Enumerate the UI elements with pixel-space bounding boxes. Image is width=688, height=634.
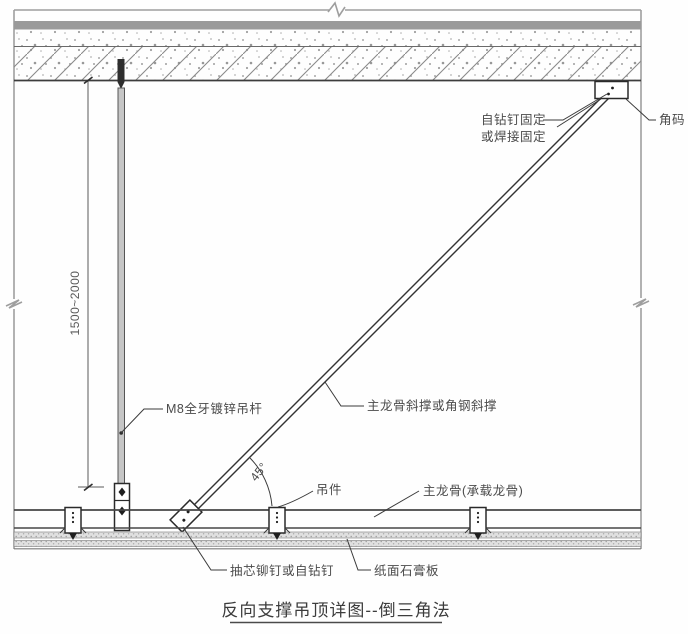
ceiling-detail-drawing: 1500~2000 45° xyxy=(0,0,688,634)
break-mark-icon xyxy=(6,300,22,308)
drawing-frame xyxy=(6,3,649,549)
label-fixing-line1: 自钻钉固定 xyxy=(481,112,546,127)
dimension-label: 1500~2000 xyxy=(68,271,82,336)
expansion-anchor xyxy=(118,59,125,82)
label-gypsum-board: 纸面石膏板 xyxy=(374,563,439,578)
main-runner xyxy=(14,510,641,528)
label-hanger-rod: M8全牙镀锌吊杆 xyxy=(166,401,262,416)
rod-hanger-connector xyxy=(115,484,130,531)
slab-screed-layer xyxy=(14,30,641,47)
dimension-hanger-height: 1500~2000 xyxy=(68,77,104,491)
label-diagonal-brace: 主龙骨斜撑或角钢斜撑 xyxy=(367,398,497,413)
angle-annotation: 45° xyxy=(247,458,272,506)
label-corner-bracket: 角码 xyxy=(659,113,685,127)
label-main-runner: 主龙骨(承载龙骨) xyxy=(423,484,523,498)
slab-topping-band xyxy=(14,21,641,30)
detail-drawing-svg: 1500~2000 45° xyxy=(0,0,688,634)
drawing-title: 反向支撑吊顶详图--倒三角法 xyxy=(221,601,450,623)
hanger-rod xyxy=(118,88,125,484)
diagonal-brace xyxy=(186,89,614,517)
break-mark-icon xyxy=(328,3,345,16)
annotations: 自钻钉固定 或焊接固定 角码 M8全牙镀锌吊杆 主龙骨斜撑或角钢斜撑 吊件 主龙… xyxy=(121,94,685,578)
label-rivet: 抽芯铆钉或自钻钉 xyxy=(230,563,334,578)
break-mark-icon xyxy=(633,299,649,307)
angle-label: 45° xyxy=(247,460,270,484)
label-fixing-line2: 或焊接固定 xyxy=(481,129,546,144)
brace-foot-bracket xyxy=(170,500,202,532)
concrete-slab xyxy=(14,21,641,81)
title-text: 反向支撑吊顶详图--倒三角法 xyxy=(221,601,450,620)
corner-bracket xyxy=(595,82,628,99)
label-hanger-clip: 吊件 xyxy=(316,483,342,497)
slab-hatch-layer xyxy=(14,47,641,80)
hanger-rod-assembly xyxy=(115,59,130,531)
gypsum-board-layers xyxy=(14,532,641,549)
